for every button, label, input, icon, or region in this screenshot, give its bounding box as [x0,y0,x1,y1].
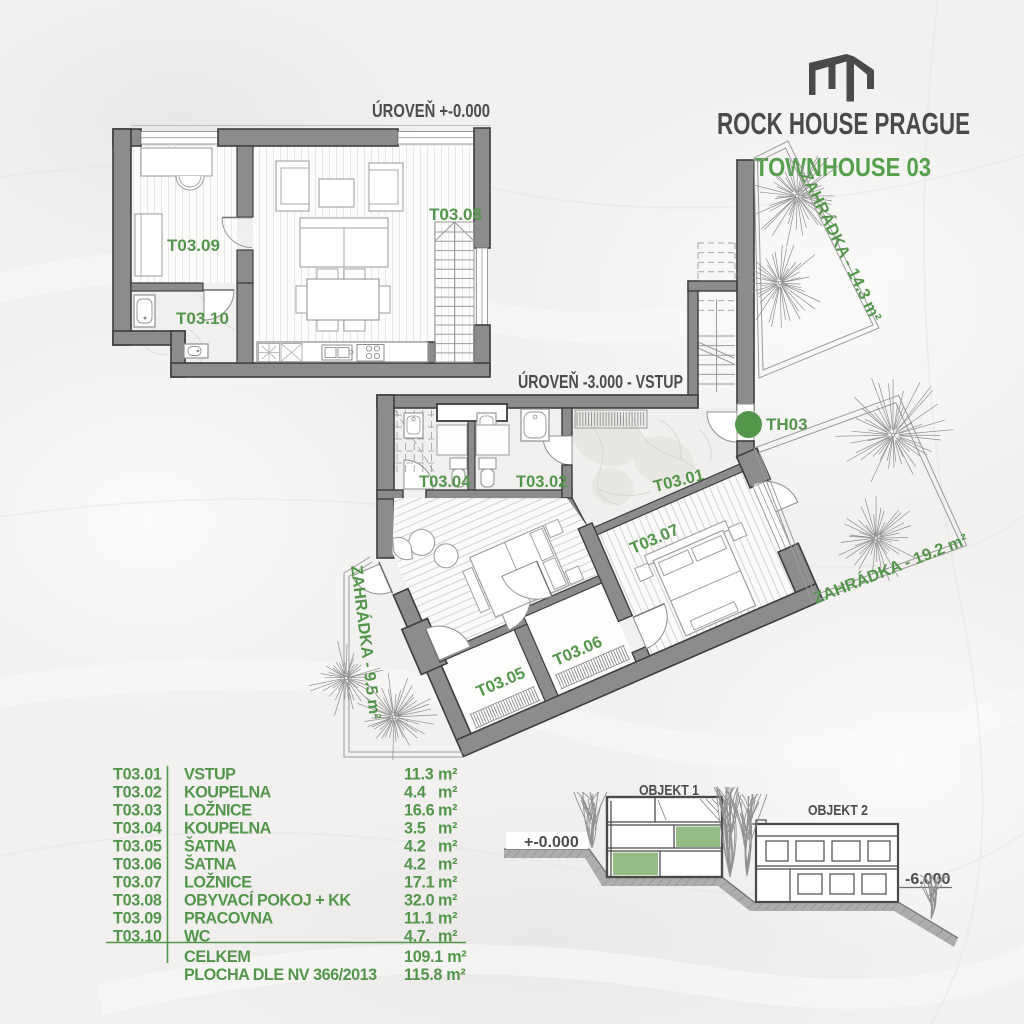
svg-text:17.1: 17.1 [404,874,435,892]
svg-text:PRACOVNA: PRACOVNA [184,910,273,928]
svg-text:T03.03: T03.03 [113,802,162,820]
svg-text:T03.01: T03.01 [113,766,162,784]
svg-text:CELKEM: CELKEM [184,948,251,966]
svg-text:VSTUP: VSTUP [184,766,236,784]
svg-text:+-0.000: +-0.000 [524,834,579,851]
svg-text:m²: m² [438,838,458,856]
svg-text:m²: m² [438,784,458,802]
svg-text:4.4: 4.4 [404,784,426,802]
svg-text:LOŽNICE: LOŽNICE [184,873,252,892]
svg-text:T03.09: T03.09 [113,910,162,928]
svg-text:T03.08: T03.08 [113,892,162,910]
svg-text:T03.07: T03.07 [113,874,162,892]
svg-text:11.1: 11.1 [404,910,434,928]
svg-text:ŠATNA: ŠATNA [184,855,237,874]
svg-text:ROCK HOUSE PRAGUE: ROCK HOUSE PRAGUE [717,106,970,141]
svg-text:11.3: 11.3 [404,766,434,784]
svg-text:m²: m² [438,802,458,820]
svg-text:KOUPELNA: KOUPELNA [184,784,272,802]
svg-text:T03.04: T03.04 [113,820,162,838]
svg-text:4.2: 4.2 [404,838,426,856]
svg-text:T03.04: T03.04 [419,473,471,491]
svg-text:m²: m² [438,874,458,892]
svg-text:ŠATNA: ŠATNA [184,837,237,856]
svg-text:OBYVACÍ POKOJ + KK: OBYVACÍ POKOJ + KK [184,891,351,910]
svg-text:32.0: 32.0 [404,892,435,910]
svg-text:OBJEKT 2: OBJEKT 2 [808,802,868,819]
svg-text:T03.02: T03.02 [516,473,567,491]
svg-text:ÚROVEŇ -3.000 - VSTUP: ÚROVEŇ -3.000 - VSTUP [518,371,683,392]
svg-text:TOWNHOUSE 03: TOWNHOUSE 03 [755,152,931,182]
svg-text:ÚROVEŇ +-0.000: ÚROVEŇ +-0.000 [372,100,490,121]
svg-text:LOŽNICE: LOŽNICE [184,801,252,820]
svg-text:m²: m² [438,766,458,784]
svg-text:m²: m² [438,856,458,874]
svg-text:m²: m² [438,910,458,928]
svg-text:-6.000: -6.000 [905,871,950,888]
svg-text:109.1 m²: 109.1 m² [404,948,467,966]
svg-text:16.6: 16.6 [404,802,435,820]
svg-text:m²: m² [438,820,458,838]
svg-text:KOUPELNA: KOUPELNA [184,820,272,838]
svg-text:PLOCHA DLE NV 366/2013: PLOCHA DLE NV 366/2013 [184,966,377,984]
svg-text:T03.10: T03.10 [176,309,229,328]
svg-text:T03.09: T03.09 [167,236,220,255]
svg-text:4.2: 4.2 [404,856,426,874]
svg-text:m²: m² [438,892,458,910]
svg-text:3.5: 3.5 [404,820,426,838]
svg-text:T03.06: T03.06 [113,856,162,874]
svg-text:T03.08: T03.08 [429,205,482,224]
svg-text:115.8 m²: 115.8 m² [404,966,466,984]
svg-text:T03.05: T03.05 [113,838,162,856]
svg-text:T03.02: T03.02 [113,784,162,802]
